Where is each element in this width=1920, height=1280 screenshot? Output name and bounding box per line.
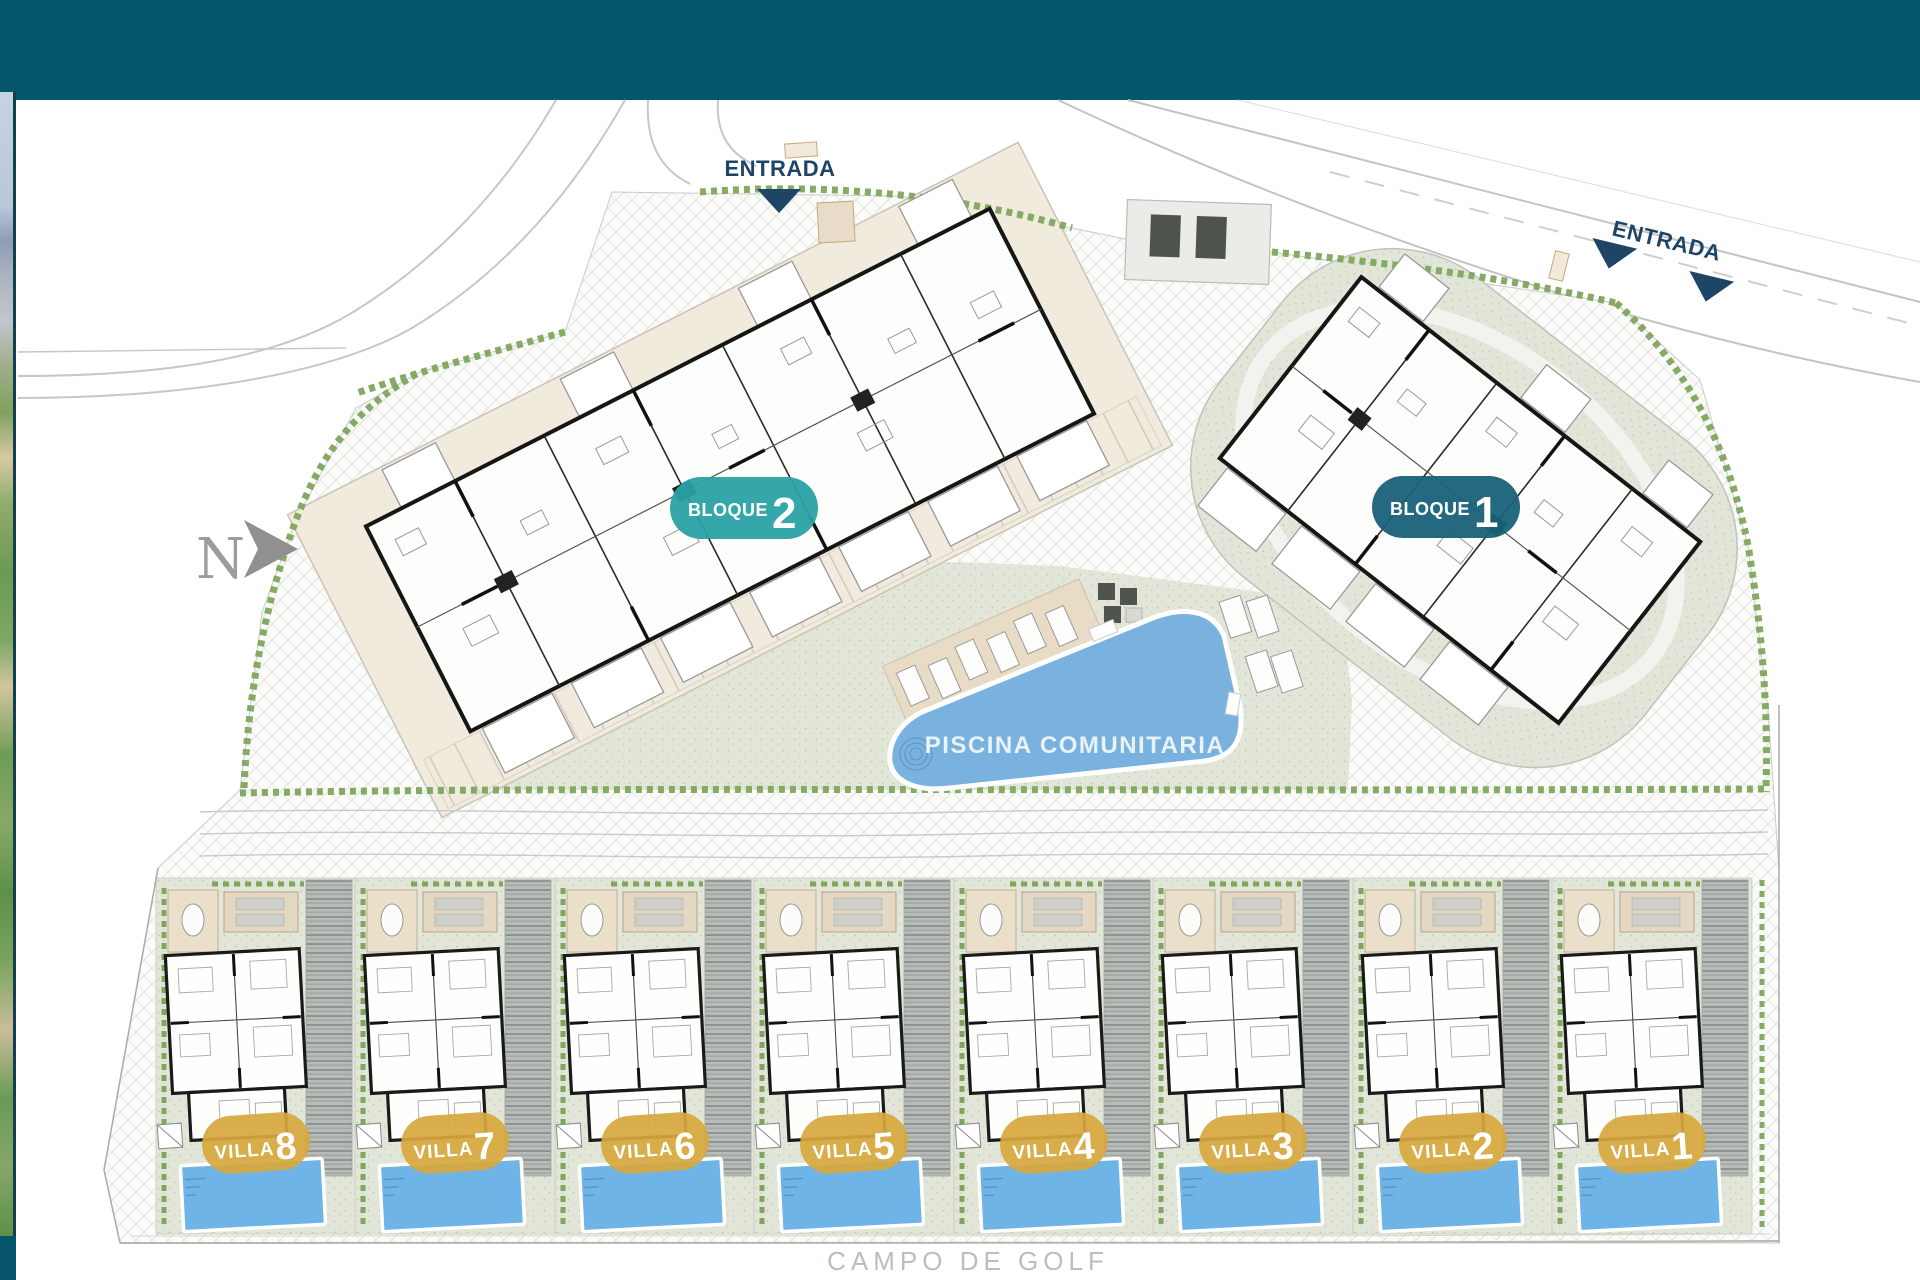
- villa-badge-number: 6: [673, 1125, 697, 1168]
- villa-plot-5: VILLA 5: [754, 878, 954, 1234]
- villa-badge-number: 3: [1271, 1125, 1295, 1168]
- villa-badge-8: VILLA 8: [200, 1110, 312, 1175]
- villa-badge-label: VILLA: [613, 1139, 674, 1164]
- villa-badge-label: VILLA: [812, 1139, 873, 1164]
- villa-plot-6: VILLA 6: [555, 878, 755, 1234]
- kiosk-top: [817, 201, 855, 243]
- master-plan-canvas: PISCINA COMUNITARIA VILLA 8 VILLA 7: [0, 0, 1920, 1280]
- villa-plot-1: VILLA 1: [1552, 878, 1752, 1234]
- north-label: N: [196, 527, 245, 592]
- villa-plot-2: VILLA 2: [1353, 878, 1553, 1234]
- bloque-2-badge: BLOQUE 2: [670, 477, 818, 539]
- villa-badge-number: 5: [872, 1125, 896, 1168]
- villa-badge-label: VILLA: [1610, 1139, 1671, 1164]
- villa-badge-6: VILLA 6: [599, 1110, 711, 1175]
- entrada-right-label: ENTRADA: [1610, 216, 1724, 266]
- villa-row: VILLA 8 VILLA 7 VILLA 6: [156, 878, 1752, 1234]
- villa-badge-number: 8: [274, 1125, 298, 1168]
- villa-badge-7: VILLA 7: [399, 1110, 511, 1175]
- villa-badge-number: 4: [1072, 1125, 1096, 1168]
- piscina-label: PISCINA COMUNITARIA: [925, 732, 1226, 759]
- villa-badge-5: VILLA 5: [798, 1110, 910, 1175]
- entrada-right: ENTRADA: [1586, 216, 1734, 307]
- villa-badge-4: VILLA 4: [998, 1110, 1110, 1175]
- villa-plot-4: VILLA 4: [954, 878, 1154, 1234]
- villa-badge-2: VILLA 2: [1397, 1110, 1509, 1175]
- villa-badge-1: VILLA 1: [1596, 1110, 1708, 1175]
- bloque-1-number: 1: [1474, 488, 1498, 537]
- bloque-1-label: BLOQUE: [1390, 499, 1470, 519]
- site-plan-page: PISCINA COMUNITARIA VILLA 8 VILLA 7: [0, 0, 1920, 1280]
- villa-badge-number: 7: [473, 1125, 497, 1168]
- villa-badge-label: VILLA: [1411, 1139, 1472, 1164]
- villa-badge-label: VILLA: [1012, 1139, 1073, 1164]
- bloque-2-number: 2: [772, 489, 796, 538]
- villa-badge-number: 2: [1471, 1125, 1495, 1168]
- bloque-2-label: BLOQUE: [688, 500, 768, 520]
- villa-badge-number: 1: [1670, 1125, 1694, 1168]
- entrada-top-label: ENTRADA: [724, 156, 835, 181]
- villa-badge-3: VILLA 3: [1197, 1110, 1309, 1175]
- bloque-1-badge: BLOQUE 1: [1372, 476, 1520, 538]
- villa-badge-label: VILLA: [1211, 1139, 1272, 1164]
- entrance-plaza: [1125, 200, 1272, 285]
- villa-badge-label: VILLA: [214, 1139, 275, 1164]
- villa-badge-label: VILLA: [413, 1139, 474, 1164]
- villa-plot-3: VILLA 3: [1153, 878, 1353, 1234]
- bench-right: [1549, 251, 1569, 282]
- villa-plot-7: VILLA 7: [355, 878, 555, 1234]
- campo-de-golf-label: CAMPO DE GOLF: [827, 1246, 1109, 1276]
- villa-plot-8: VILLA 8: [156, 878, 356, 1234]
